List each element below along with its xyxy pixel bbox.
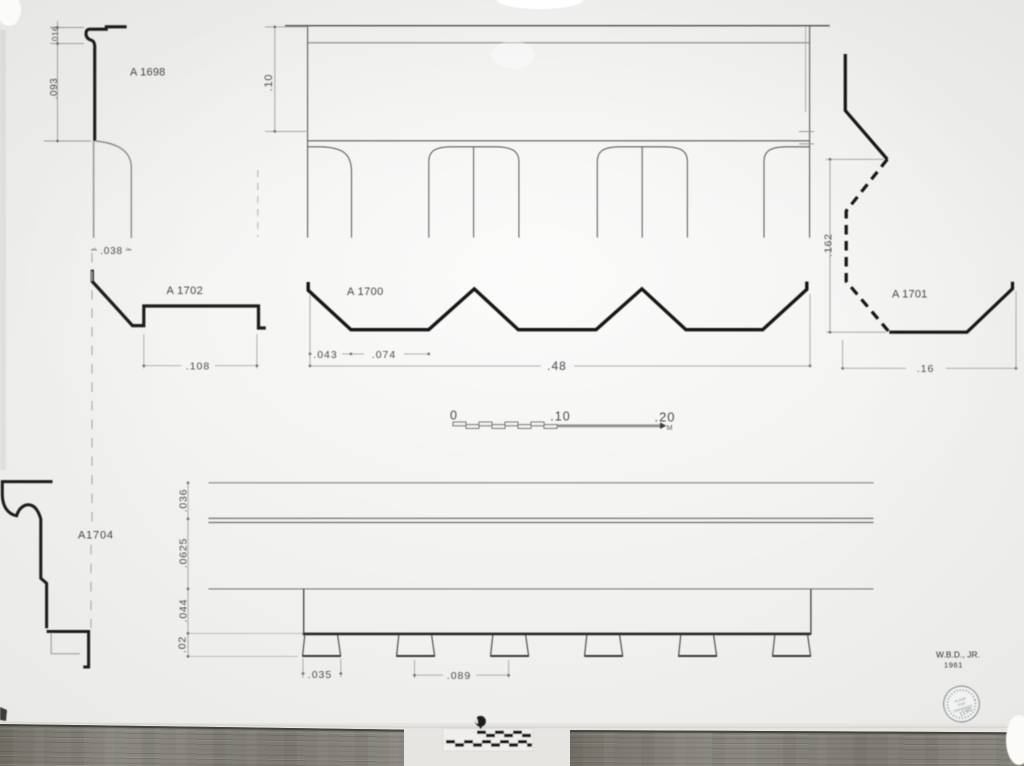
- svg-text:0: 0: [450, 409, 458, 423]
- svg-text:.089: .089: [447, 670, 471, 682]
- svg-text:.0625: .0625: [178, 538, 190, 568]
- svg-text:.10: .10: [550, 410, 570, 424]
- svg-text:.035: .035: [308, 669, 332, 681]
- svg-text:1961: 1961: [944, 661, 963, 670]
- svg-text:.16: .16: [917, 363, 935, 375]
- svg-text:.02: .02: [177, 636, 189, 653]
- svg-text:.043: .043: [313, 349, 337, 361]
- svg-text:A 1700: A 1700: [347, 286, 384, 298]
- svg-text:.108: .108: [186, 361, 210, 373]
- svg-text:.074: .074: [372, 349, 396, 361]
- svg-text:.036: .036: [178, 489, 190, 513]
- svg-text:.016: .016: [50, 26, 60, 44]
- svg-text:.48: .48: [547, 359, 567, 373]
- svg-text:.044: .044: [178, 599, 190, 623]
- svg-text:A 1702: A 1702: [167, 285, 204, 297]
- svg-text:.20: .20: [654, 410, 675, 425]
- svg-text:.10: .10: [263, 74, 275, 92]
- svg-text:.093: .093: [49, 78, 60, 99]
- svg-text:A1704: A1704: [78, 530, 114, 542]
- svg-text:.162: .162: [823, 233, 835, 257]
- svg-text:.038: .038: [100, 246, 123, 257]
- svg-text:A 1698: A 1698: [130, 67, 165, 79]
- svg-text:M: M: [667, 425, 673, 432]
- svg-text:W.B.D., JR.: W.B.D., JR.: [936, 650, 980, 660]
- svg-text:A 1701: A 1701: [892, 289, 927, 301]
